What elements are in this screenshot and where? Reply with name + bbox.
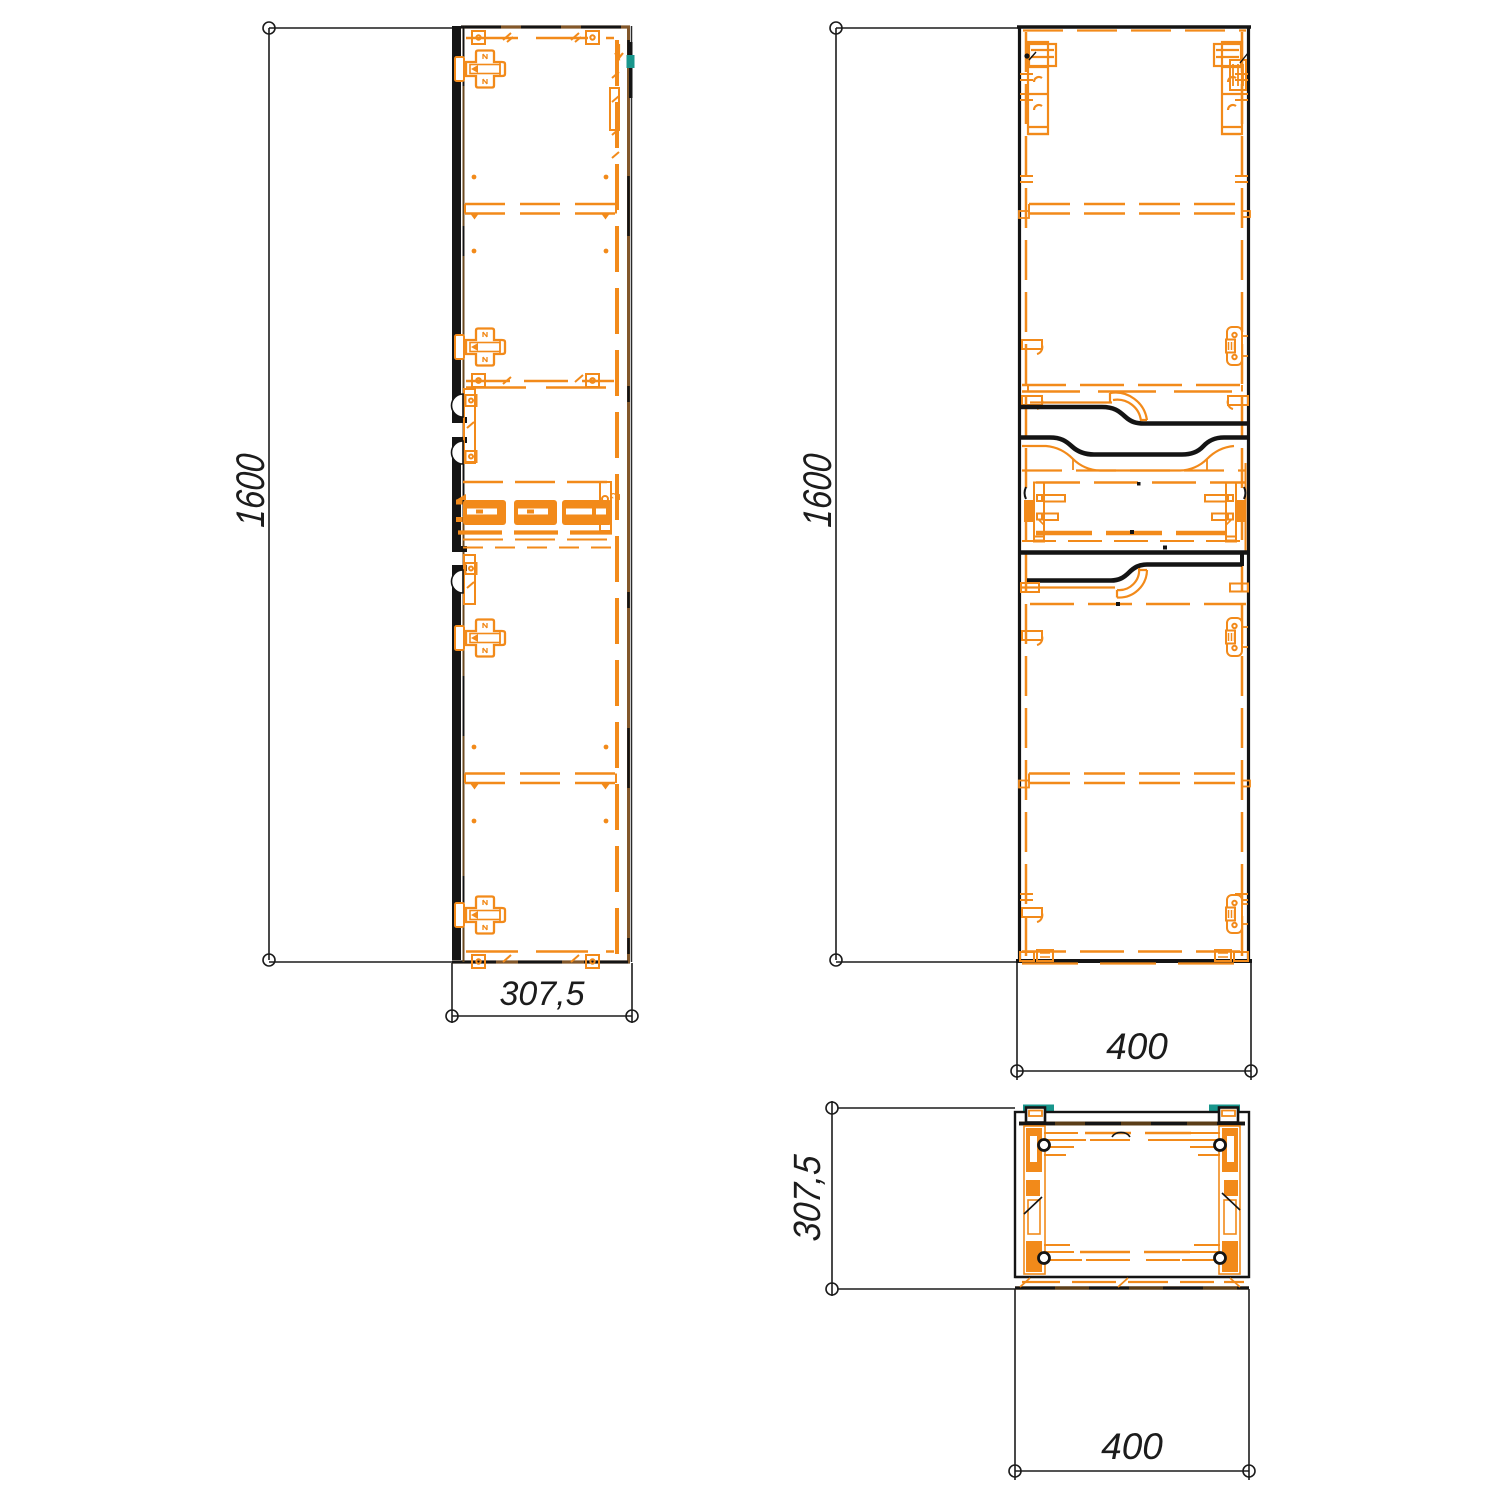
svg-text:2: 2 <box>608 492 623 501</box>
svg-text:307,5: 307,5 <box>785 1152 828 1242</box>
svg-text:1600: 1600 <box>795 451 840 528</box>
svg-text:400: 400 <box>1106 1026 1168 1067</box>
svg-text:400: 400 <box>1101 1426 1163 1467</box>
svg-text:307,5: 307,5 <box>499 975 584 1013</box>
svg-text:1600: 1600 <box>228 451 273 528</box>
